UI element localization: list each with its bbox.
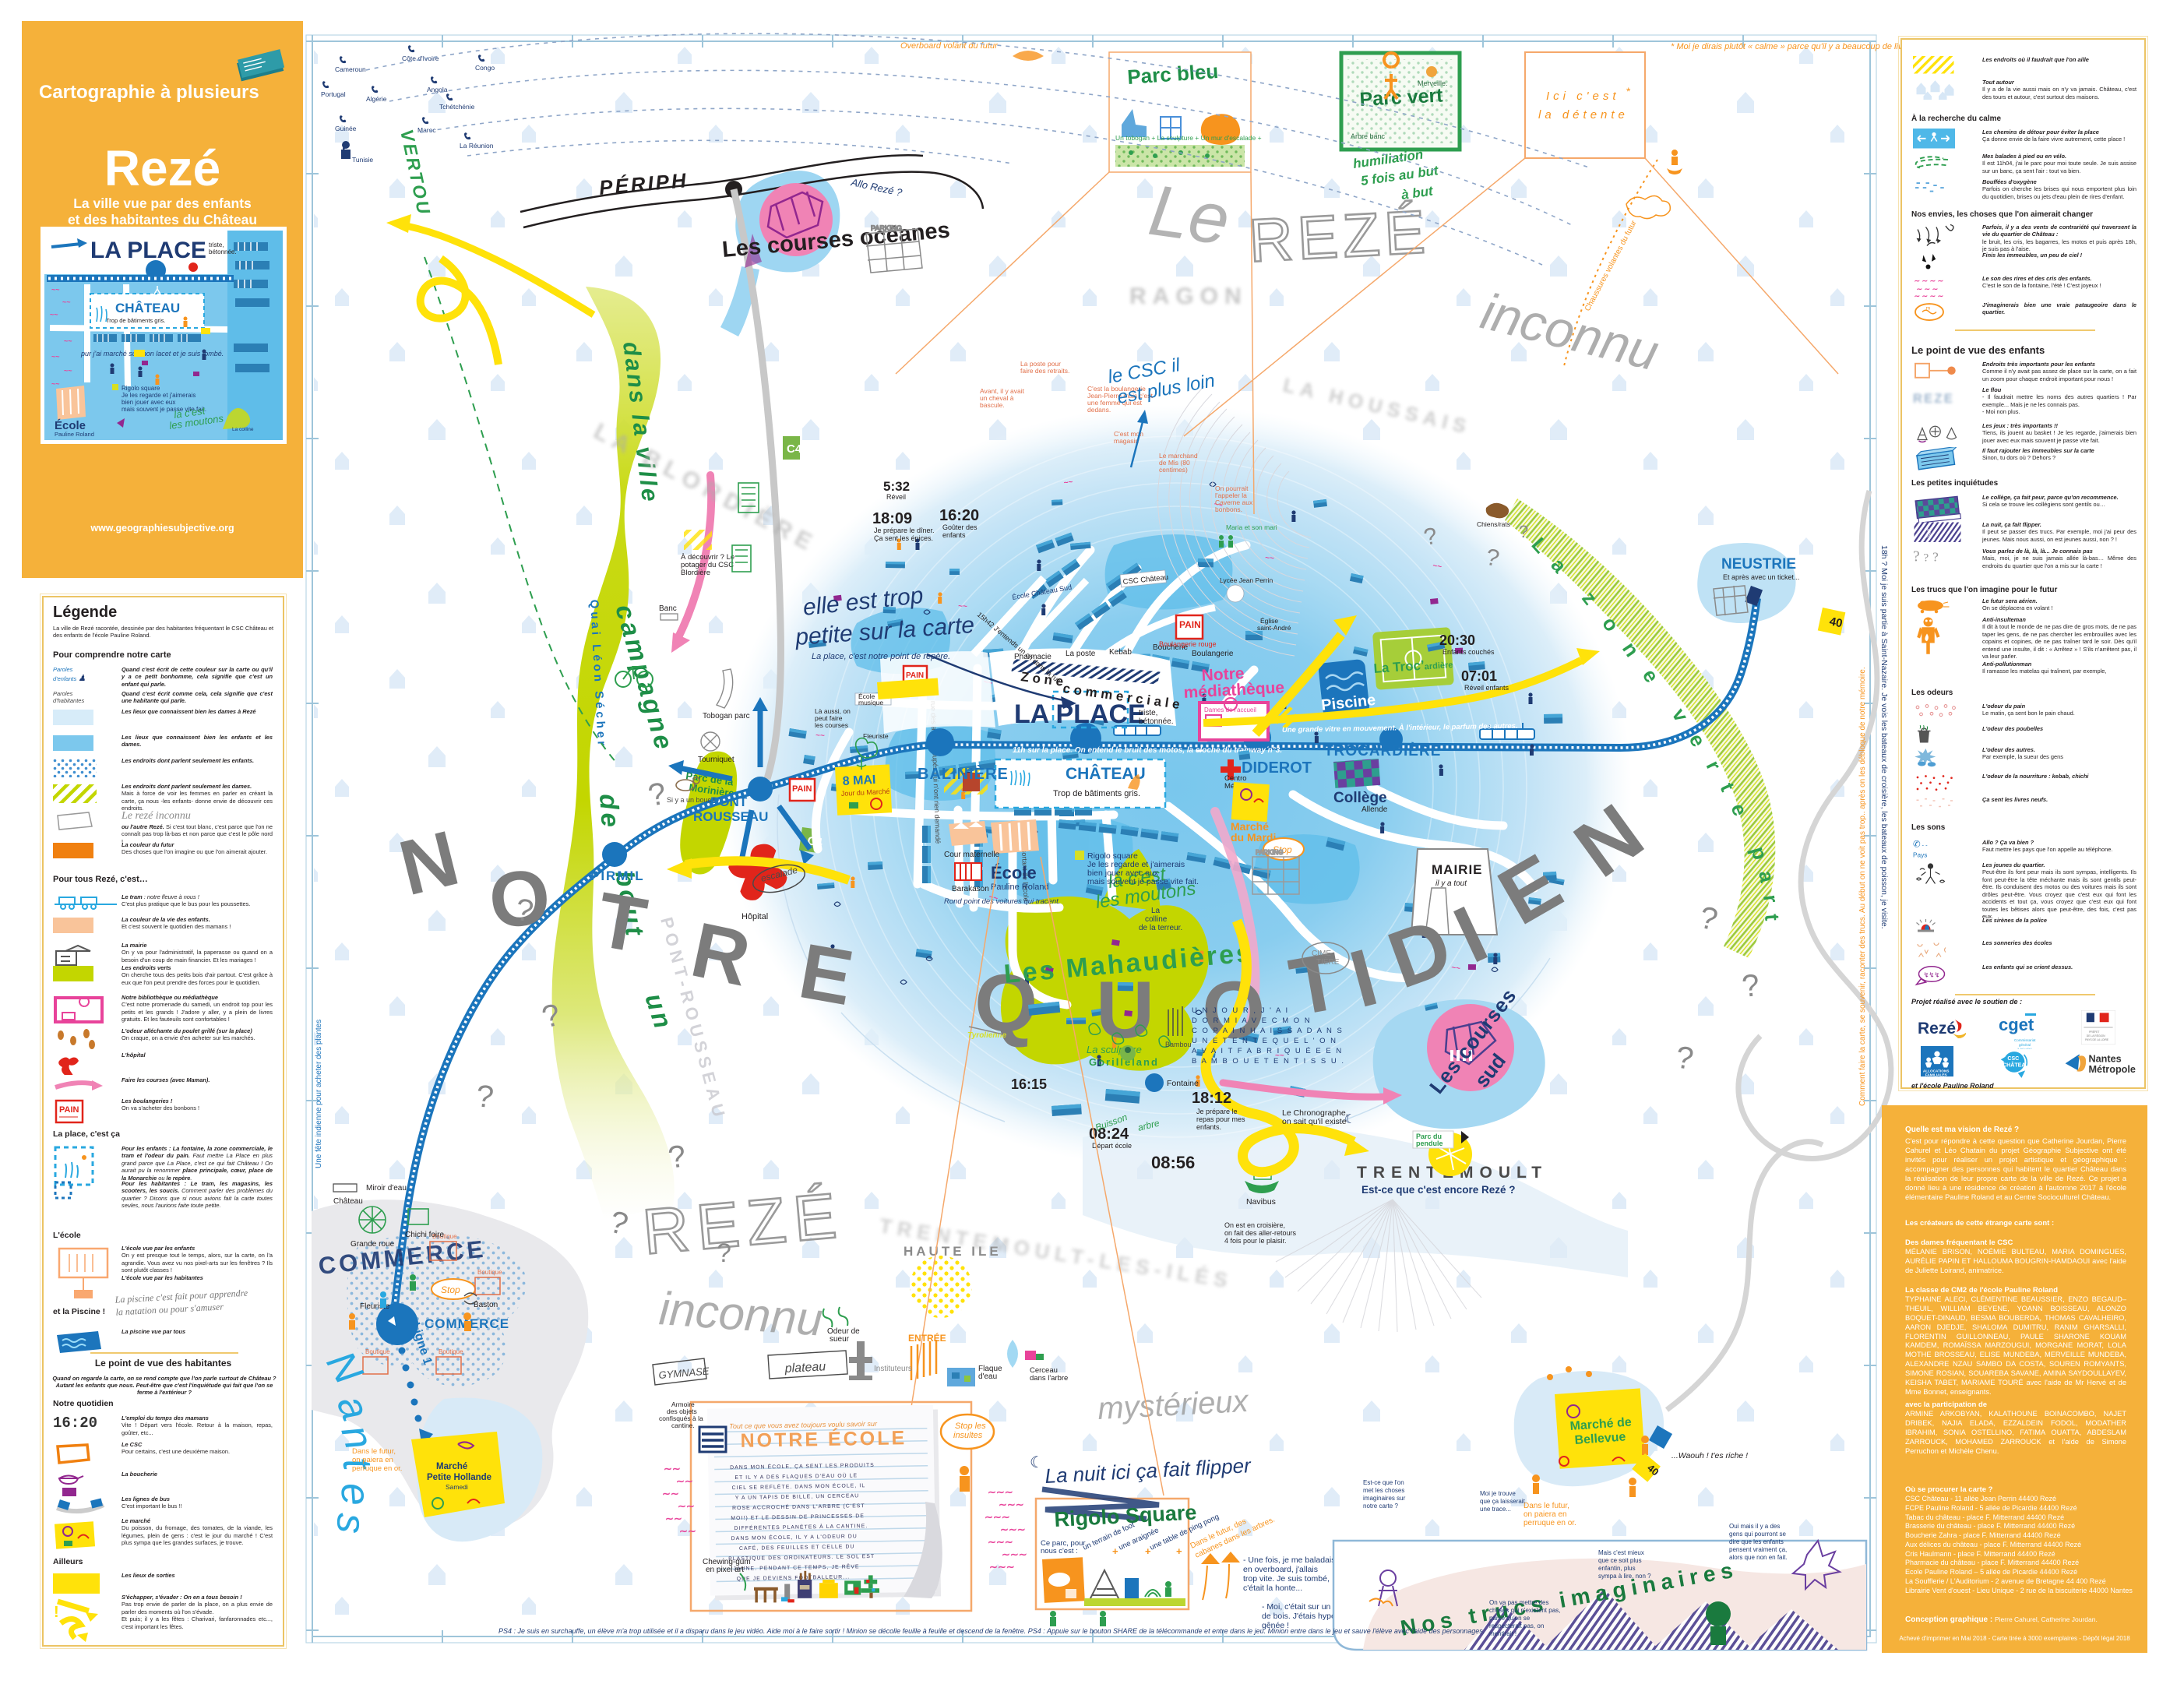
svg-text:Métropole: Métropole [2089,1064,2136,1075]
svg-text:PAYS DE LA LOIRE: PAYS DE LA LOIRE [2085,1038,2109,1041]
svg-text:Guinée: Guinée [335,125,357,132]
svg-text:Si y a un bouc !: Si y a un bouc ! [667,796,715,804]
svg-text:Algérie: Algérie [366,95,387,103]
svg-text:insultes: insultes [953,1431,983,1440]
svg-text:musique: musique [858,699,883,706]
svg-text:Tchétchénie: Tchétchénie [439,103,475,111]
svg-text:on paiera en: on paiera en [1524,1510,1567,1519]
svg-text:enfants: enfants [942,531,966,539]
svg-text:PIRMIL: PIRMIL [590,868,645,883]
svg-text:Collège: Collège [1333,790,1387,806]
svg-text:On est en croisière,: On est en croisière, [1224,1221,1285,1229]
svg-text:CSC: CSC [2007,1056,2019,1062]
svg-text:m: m [1926,306,1931,312]
svg-text:Rigolo square: Rigolo square [122,385,160,392]
svg-text:Bambou: Bambou [1165,1041,1192,1048]
svg-text:Congo: Congo [475,64,495,72]
svg-text:PAIN: PAIN [1179,619,1201,630]
svg-text:Blordière: Blordière [681,569,710,577]
svg-text:REZÉ: REZÉ [1247,197,1431,275]
svg-text:Allende: Allende [1361,805,1388,814]
svg-text:FAMILIALES: FAMILIALES [1925,1073,1947,1076]
svg-text:Chiens/rats: Chiens/rats [1477,520,1510,528]
svg-text:en pixel art: en pixel art [706,1566,744,1574]
svg-text:trop vite. Je suis tombé,: trop vite. Je suis tombé, [1243,1574,1330,1584]
svg-text:~~: ~~ [815,731,825,740]
svg-text:Le: Le [1144,171,1235,260]
svg-text:Miroir d'eau: Miroir d'eau [366,1184,407,1193]
svg-text:Enfants couchés: Enfants couchés [1442,648,1495,656]
svg-text:cget: cget [1999,1015,2034,1034]
svg-text:Angola: Angola [427,86,448,93]
svg-text:Tyrolienne: Tyrolienne [967,1031,1007,1040]
svg-text:La: La [1151,907,1161,915]
svg-text:Rezé: Rezé [1918,1020,1956,1038]
svg-text:Pharmacie: Pharmacie [1014,653,1051,661]
svg-text:∼∼∼: ∼∼∼ [1000,1524,1026,1535]
svg-text:DE LA RÉGION: DE LA RÉGION [2087,1034,2105,1038]
svg-text:LA PLACE: LA PLACE [1014,699,1146,729]
svg-text:PARKING: PARKING [1256,849,1283,856]
svg-text:MAIRIE: MAIRIE [1432,862,1483,877]
svg-text:8 MAI: 8 MAI [842,773,876,788]
svg-text:~~: ~~ [51,353,60,361]
svg-text:La poste: La poste [1066,650,1096,658]
svg-text:que ce soit plus: que ce soit plus [1598,1557,1642,1564]
svg-text:La colline: La colline [232,427,254,432]
svg-text:NEUSTRIE: NEUSTRIE [1721,556,1796,572]
svg-text:16:15: 16:15 [1011,1076,1047,1092]
svg-text:Un tobogan + La sculpture +: Un tobogan + La sculpture + Un mur d'esc… [1115,134,1262,142]
svg-text:Maroc: Maroc [417,126,436,134]
svg-text:DIDEROT: DIDEROT [1242,759,1312,777]
svg-text:Boulangerie: Boulangerie [1192,650,1234,658]
svg-text:bétonnée.: bétonnée. [1139,717,1174,726]
svg-text:s: s [328,1512,374,1534]
svg-text:colline: colline [1145,915,1168,924]
svg-text:bétonnée.: bétonnée. [209,248,237,255]
svg-text:Fontaine: Fontaine [1167,1079,1199,1088]
svg-text:PARKING: PARKING [871,224,902,232]
svg-text:saint-André: saint-André [1257,624,1291,632]
svg-text:la détente: la détente [1538,108,1629,122]
svg-text:+: + [1112,1545,1118,1557]
svg-text:CIME: CIME [1312,949,1331,958]
svg-text:↯↯↯: ↯↯↯ [1924,971,1940,978]
svg-text:D O R M I A V E C M O N: D O R M I A V E C M O N [1192,1016,1312,1025]
svg-text:LA PLACE: LA PLACE [90,238,206,263]
svg-text:∼∼: ∼∼ [664,1463,681,1474]
svg-text:☾: ☾ [1030,1454,1044,1471]
svg-text:ROUSSEAU: ROUSSEAU [693,809,768,824]
svg-text:dans l'arbre: dans l'arbre [1030,1374,1068,1383]
svg-text:20:30: 20:30 [1439,632,1475,648]
svg-text:Est-ce que l'on: Est-ce que l'on [1363,1479,1404,1486]
svg-text:08:56: 08:56 [1151,1153,1195,1172]
svg-text:~~: ~~ [50,311,58,319]
svg-text:TROCARDIÈRE: TROCARDIÈRE [1324,742,1441,759]
svg-text:☾: ☾ [1344,1113,1355,1126]
svg-text:~~: ~~ [51,286,60,294]
svg-text:∼∼∼: ∼∼∼ [988,1486,1013,1498]
svg-text:centimes): centimes) [1159,466,1188,474]
svg-text:d'eau: d'eau [978,1372,997,1381]
svg-text:∼∼: ∼∼ [676,1475,693,1487]
svg-text:Château: Château [333,1197,363,1206]
svg-text:sympa à lire, non ?: sympa à lire, non ? [1598,1573,1651,1580]
svg-text:dire que les enfants: dire que les enfants [1729,1538,1784,1545]
svg-text:PAIN: PAIN [906,671,924,680]
svg-text:- Une fois, je me baladais: - Une fois, je me baladais [1243,1555,1335,1565]
svg-text:gens qui pourront se: gens qui pourront se [1729,1531,1786,1538]
svg-text:!: ! [54,1604,59,1621]
svg-text:Réveil enfants: Réveil enfants [1464,684,1509,692]
svg-text:☽: ☽ [1920,527,1932,541]
svg-text:pensent vraiment ça,: pensent vraiment ça, [1729,1546,1787,1553]
svg-text:∼∼: ∼∼ [662,1488,679,1499]
svg-text:?: ? [717,1238,731,1268]
svg-text:~~: ~~ [51,380,60,388]
svg-text:B A M B O U E T E N T I: B A M B O U E T E N T I S S U . [1192,1057,1345,1066]
svg-text:Je les regarde et j'aimerais: Je les regarde et j'aimerais [122,392,196,399]
svg-text:~~: ~~ [958,602,967,611]
svg-text:Portugal: Portugal [321,90,346,98]
svg-text:perruque en or.: perruque en or. [352,1464,402,1473]
svg-text:∼ ∼ ∼ ∼: ∼ ∼ ∼ ∼ [1915,292,1944,298]
svg-text:∼∼∼: ∼∼∼ [988,1536,1013,1548]
svg-text:ALLOCATIONS: ALLOCATIONS [1923,1069,1950,1073]
svg-text:Oui mais il y a des: Oui mais il y a des [1729,1523,1780,1530]
svg-text:∼∼: ∼∼ [665,1513,682,1524]
svg-text:magasin: magasin [1114,437,1139,445]
svg-text:parce qu'on se: parce qu'on se [1489,1615,1531,1622]
svg-text:5:32: 5:32 [883,479,910,494]
svg-text:?: ? [474,1079,495,1115]
svg-text:dedans.: dedans. [1087,406,1111,414]
svg-text:Chichi foire: Chichi foire [405,1231,444,1239]
svg-text:~~: ~~ [64,367,72,375]
svg-text:faire des retraits.: faire des retraits. [1020,367,1069,375]
svg-text:on fait des aller-retours: on fait des aller-retours [1224,1229,1297,1237]
svg-text:Comment faire la carte, se sou: Comment faire la carte, se souvenir, rac… [1858,667,1867,1106]
svg-text:les courses: les courses [815,721,848,729]
svg-text:Banc: Banc [659,604,677,613]
svg-text:?: ? [1519,522,1528,541]
svg-text:La Réunion: La Réunion [460,142,494,150]
svg-text:Stop les: Stop les [955,1422,986,1431]
svg-text:∼∼∼: ∼∼∼ [1002,1548,1027,1560]
svg-text:∼∼∼: ∼∼∼ [999,1499,1024,1510]
svg-text:PONT: PONT [710,794,748,809]
svg-text:cantine.: cantine. [671,1422,695,1429]
svg-text:Boutique: Boutique [477,1269,502,1276]
svg-text:U N J O U R , J ' A I: U N J O U R , J ' A I [1192,1006,1289,1015]
svg-text:Dans le futur,: Dans le futur, [1524,1502,1569,1510]
svg-text:Navibus: Navibus [1246,1197,1276,1207]
svg-text:sueur: sueur [830,1335,850,1344]
svg-text:Arbre banc: Arbre banc [1351,132,1386,140]
svg-text:Rond point des voitures qui: Rond point des voitures qui tracent. [944,897,1060,906]
svg-text:Moi je trouve: Moi je trouve [1480,1490,1516,1497]
svg-text:repas pour mes: repas pour mes [1196,1115,1245,1123]
svg-text:Lycée Jean Perrin: Lycée Jean Perrin [1220,576,1273,584]
svg-text:Mais c'est mieux: Mais c'est mieux [1598,1549,1644,1556]
svg-text:ENTRÉE: ENTRÉE [908,1332,946,1344]
svg-text:Merveille.: Merveille. [1418,79,1448,87]
svg-text:?: ? [1740,968,1761,1004]
svg-text:~~: ~~ [1063,478,1073,488]
svg-text:RAGON: RAGON [1129,284,1248,309]
svg-text:bascule.: bascule. [980,401,1005,409]
svg-text:Je prépare le dîner.: Je prépare le dîner. [874,527,935,534]
svg-text:Départ école: Départ école [1092,1142,1132,1150]
svg-text:Petite Hollande: Petite Hollande [427,1473,491,1482]
svg-text:Marché: Marché [436,1462,467,1471]
svg-text:Cameroun: Cameroun [335,65,366,73]
svg-text:une trace...: une trace... [1480,1506,1511,1513]
svg-text:C4: C4 [787,442,802,456]
svg-text:Côte d'Ivoire: Côte d'Ivoire [402,55,439,62]
svg-text:Nantes: Nantes [2089,1053,2122,1064]
svg-text:e: e [332,1481,379,1507]
svg-text:PS4 : Je suis en surchauffe, u: PS4 : Je suis en surchauffe, un élève m'… [498,1627,1485,1635]
svg-text:plateau: plateau [784,1360,826,1376]
svg-text:Stop: Stop [441,1284,460,1295]
svg-text:bien jouer avec eux: bien jouer avec eux [122,399,175,406]
svg-text:18h ? Moi je suis partie à Sai: 18h ? Moi je suis partie à Saint-Nazaire… [1879,545,1889,929]
svg-text:Pauline Roland: Pauline Roland [991,883,1049,892]
svg-text:bonbons.: bonbons. [1215,506,1242,513]
svg-text:Maria et son mari: Maria et son mari [1226,523,1277,531]
svg-text:Trop de bâtiments gris.: Trop de bâtiments gris. [1053,789,1140,798]
svg-text:Grande roue: Grande roue [350,1240,395,1249]
svg-text:18:12: 18:12 [1192,1090,1231,1107]
svg-text:c'était la honte...: c'était la honte... [1243,1584,1302,1593]
svg-text:Tunisie: Tunisie [352,156,373,164]
svg-text:triste,: triste, [209,241,224,248]
svg-text:nous c'est :: nous c'est : [1041,1547,1078,1555]
svg-text:CHÂTEAU: CHÂTEAU [115,301,180,315]
svg-text:4 fois pour le plaisir.: 4 fois pour le plaisir. [1224,1237,1287,1245]
svg-text:Je prépare le: Je prépare le [1196,1108,1238,1115]
svg-text:TIÈRE: TIÈRE [1316,956,1340,967]
svg-text:∼ ∼ ∼ ∼: ∼ ∼ ∼ ∼ [1915,277,1944,285]
svg-text:on sait qu'il existe: on sait qu'il existe [1282,1117,1347,1126]
svg-text:Cour maternelle: Cour maternelle [944,851,1000,859]
svg-text:PRÉFET: PRÉFET [2089,1030,2099,1034]
svg-text:il y a tout: il y a tout [1435,879,1467,888]
svg-text:Barakason: Barakason [952,885,989,893]
svg-text:Tobogan parc: Tobogan parc [703,712,750,720]
svg-text:Dans le futur,: Dans le futur, [352,1447,396,1456]
svg-text:∼∼: ∼∼ [679,1525,696,1537]
svg-text:Samedi: Samedi [446,1483,468,1491]
svg-text:C O P A I N H A I S S A D: C O P A I N H A I S S A D A N S [1192,1027,1344,1035]
svg-text:de la terreur.: de la terreur. [1139,924,1182,932]
svg-text:Pauline Roland: Pauline Roland [55,431,94,438]
svg-text:Réveil: Réveil [886,493,906,501]
svg-text:PAIN: PAIN [792,784,812,794]
svg-text:...Waouh ! t'es riche !: ...Waouh ! t'es riche ! [1671,1451,1748,1460]
svg-text:Trop de bâtiments gris.: Trop de bâtiments gris. [106,317,165,324]
svg-text:*: * [1626,85,1631,97]
svg-text:Tourniquet: Tourniquet [698,756,734,764]
svg-text:choses qui n'existent pas,: choses qui n'existent pas, [1489,1607,1560,1614]
svg-text:notre carte ?: notre carte ? [1363,1503,1398,1510]
svg-text:Dames de l'accueil: Dames de l'accueil [1204,706,1256,713]
svg-text:de bois. J'étais hyper: de bois. J'étais hyper [1262,1612,1339,1621]
svg-text:Kebab: Kebab [1109,648,1132,657]
svg-text:40: 40 [1828,615,1844,630]
svg-text:perruque en or.: perruque en or. [1524,1519,1576,1527]
svg-text:de: de [594,793,625,831]
svg-text:mentirait !: mentirait ! [1489,1630,1516,1637]
svg-text:enfantin, plus: enfantin, plus [1598,1565,1636,1572]
svg-text:Est-ce que c'est encore Rezé ?: Est-ce que c'est encore Rezé ? [1361,1184,1516,1196]
svg-text:A V A I T F A B R I Q U É E: A V A I T F A B R I Q U É E E N [1192,1047,1343,1055]
svg-text:enfants.: enfants. [1196,1123,1221,1131]
svg-text:07:01: 07:01 [1461,668,1497,684]
svg-text:PAIN: PAIN [59,1105,79,1115]
svg-text:alors que non en fait.: alors que non en fait. [1729,1554,1788,1561]
svg-text:Baston: Baston [474,1301,498,1309]
svg-text:Overboard volant du futur: Overboard volant du futur [900,41,999,51]
svg-text:mais souvent je passe vite fai: mais souvent je passe vite fait. [1087,877,1199,886]
svg-text:Boutique: Boutique [439,1348,463,1355]
svg-text:Ça sent les épices.: Ça sent les épices. [874,534,933,542]
svg-text:Fleuriste: Fleuriste [863,732,889,740]
svg-text:Une fête indienne pour acheter: Une fête indienne pour acheter des plant… [315,1020,323,1168]
svg-text:que ça laisserait: que ça laisserait [1480,1498,1526,1505]
svg-text:+: + [1176,1545,1182,1557]
svg-text:NOTRE ÉCOLE: NOTRE ÉCOLE [740,1426,907,1452]
svg-text:On va pas mettre des: On va pas mettre des [1489,1599,1548,1606]
svg-text:Boutique: Boutique [365,1348,390,1355]
svg-text:∼∼∼: ∼∼∼ [985,1511,1010,1523]
svg-text:Et après avec un ticket...: Et après avec un ticket... [1723,573,1800,581]
svg-text:U N E T E N T E Q U E L: U N E T E N T E Q U E L ' O N [1192,1037,1337,1045]
svg-text:∼∼: ∼∼ [678,1500,695,1512]
svg-text:~~: ~~ [1432,562,1442,572]
svg-text:BALINIÈRE: BALINIÈRE [918,765,1009,783]
svg-text:~~: ~~ [62,298,71,306]
svg-text:Instituteurs: Instituteurs [874,1365,912,1373]
svg-text:met les choses: met les choses [1363,1487,1404,1494]
svg-text:imaginaires sur: imaginaires sur [1363,1495,1406,1502]
svg-text:en overboard, j'allais: en overboard, j'allais [1243,1565,1318,1574]
svg-text:~~: ~~ [64,337,72,345]
svg-text:∼∼∼: ∼∼∼ [989,1561,1015,1573]
svg-text:Goûter des: Goûter des [942,523,978,531]
svg-text:on paiera en: on paiera en [352,1456,393,1464]
svg-text:Commissariat: Commissariat [2014,1038,2036,1042]
svg-text:Ici c'est: Ici c'est [1546,90,1620,103]
svg-text:respecterait pas, on: respecterait pas, on [1489,1622,1544,1629]
svg-text:18:09: 18:09 [872,510,912,527]
svg-text:pendule: pendule [1416,1140,1443,1147]
svg-text:triste,: triste, [1139,709,1157,717]
svg-text:Boulangerie rouge: Boulangerie rouge [1159,640,1217,648]
svg-text:16:20: 16:20 [939,507,979,524]
svg-text:La place, c'est notre point de: La place, c'est notre point de repère. [812,652,950,661]
